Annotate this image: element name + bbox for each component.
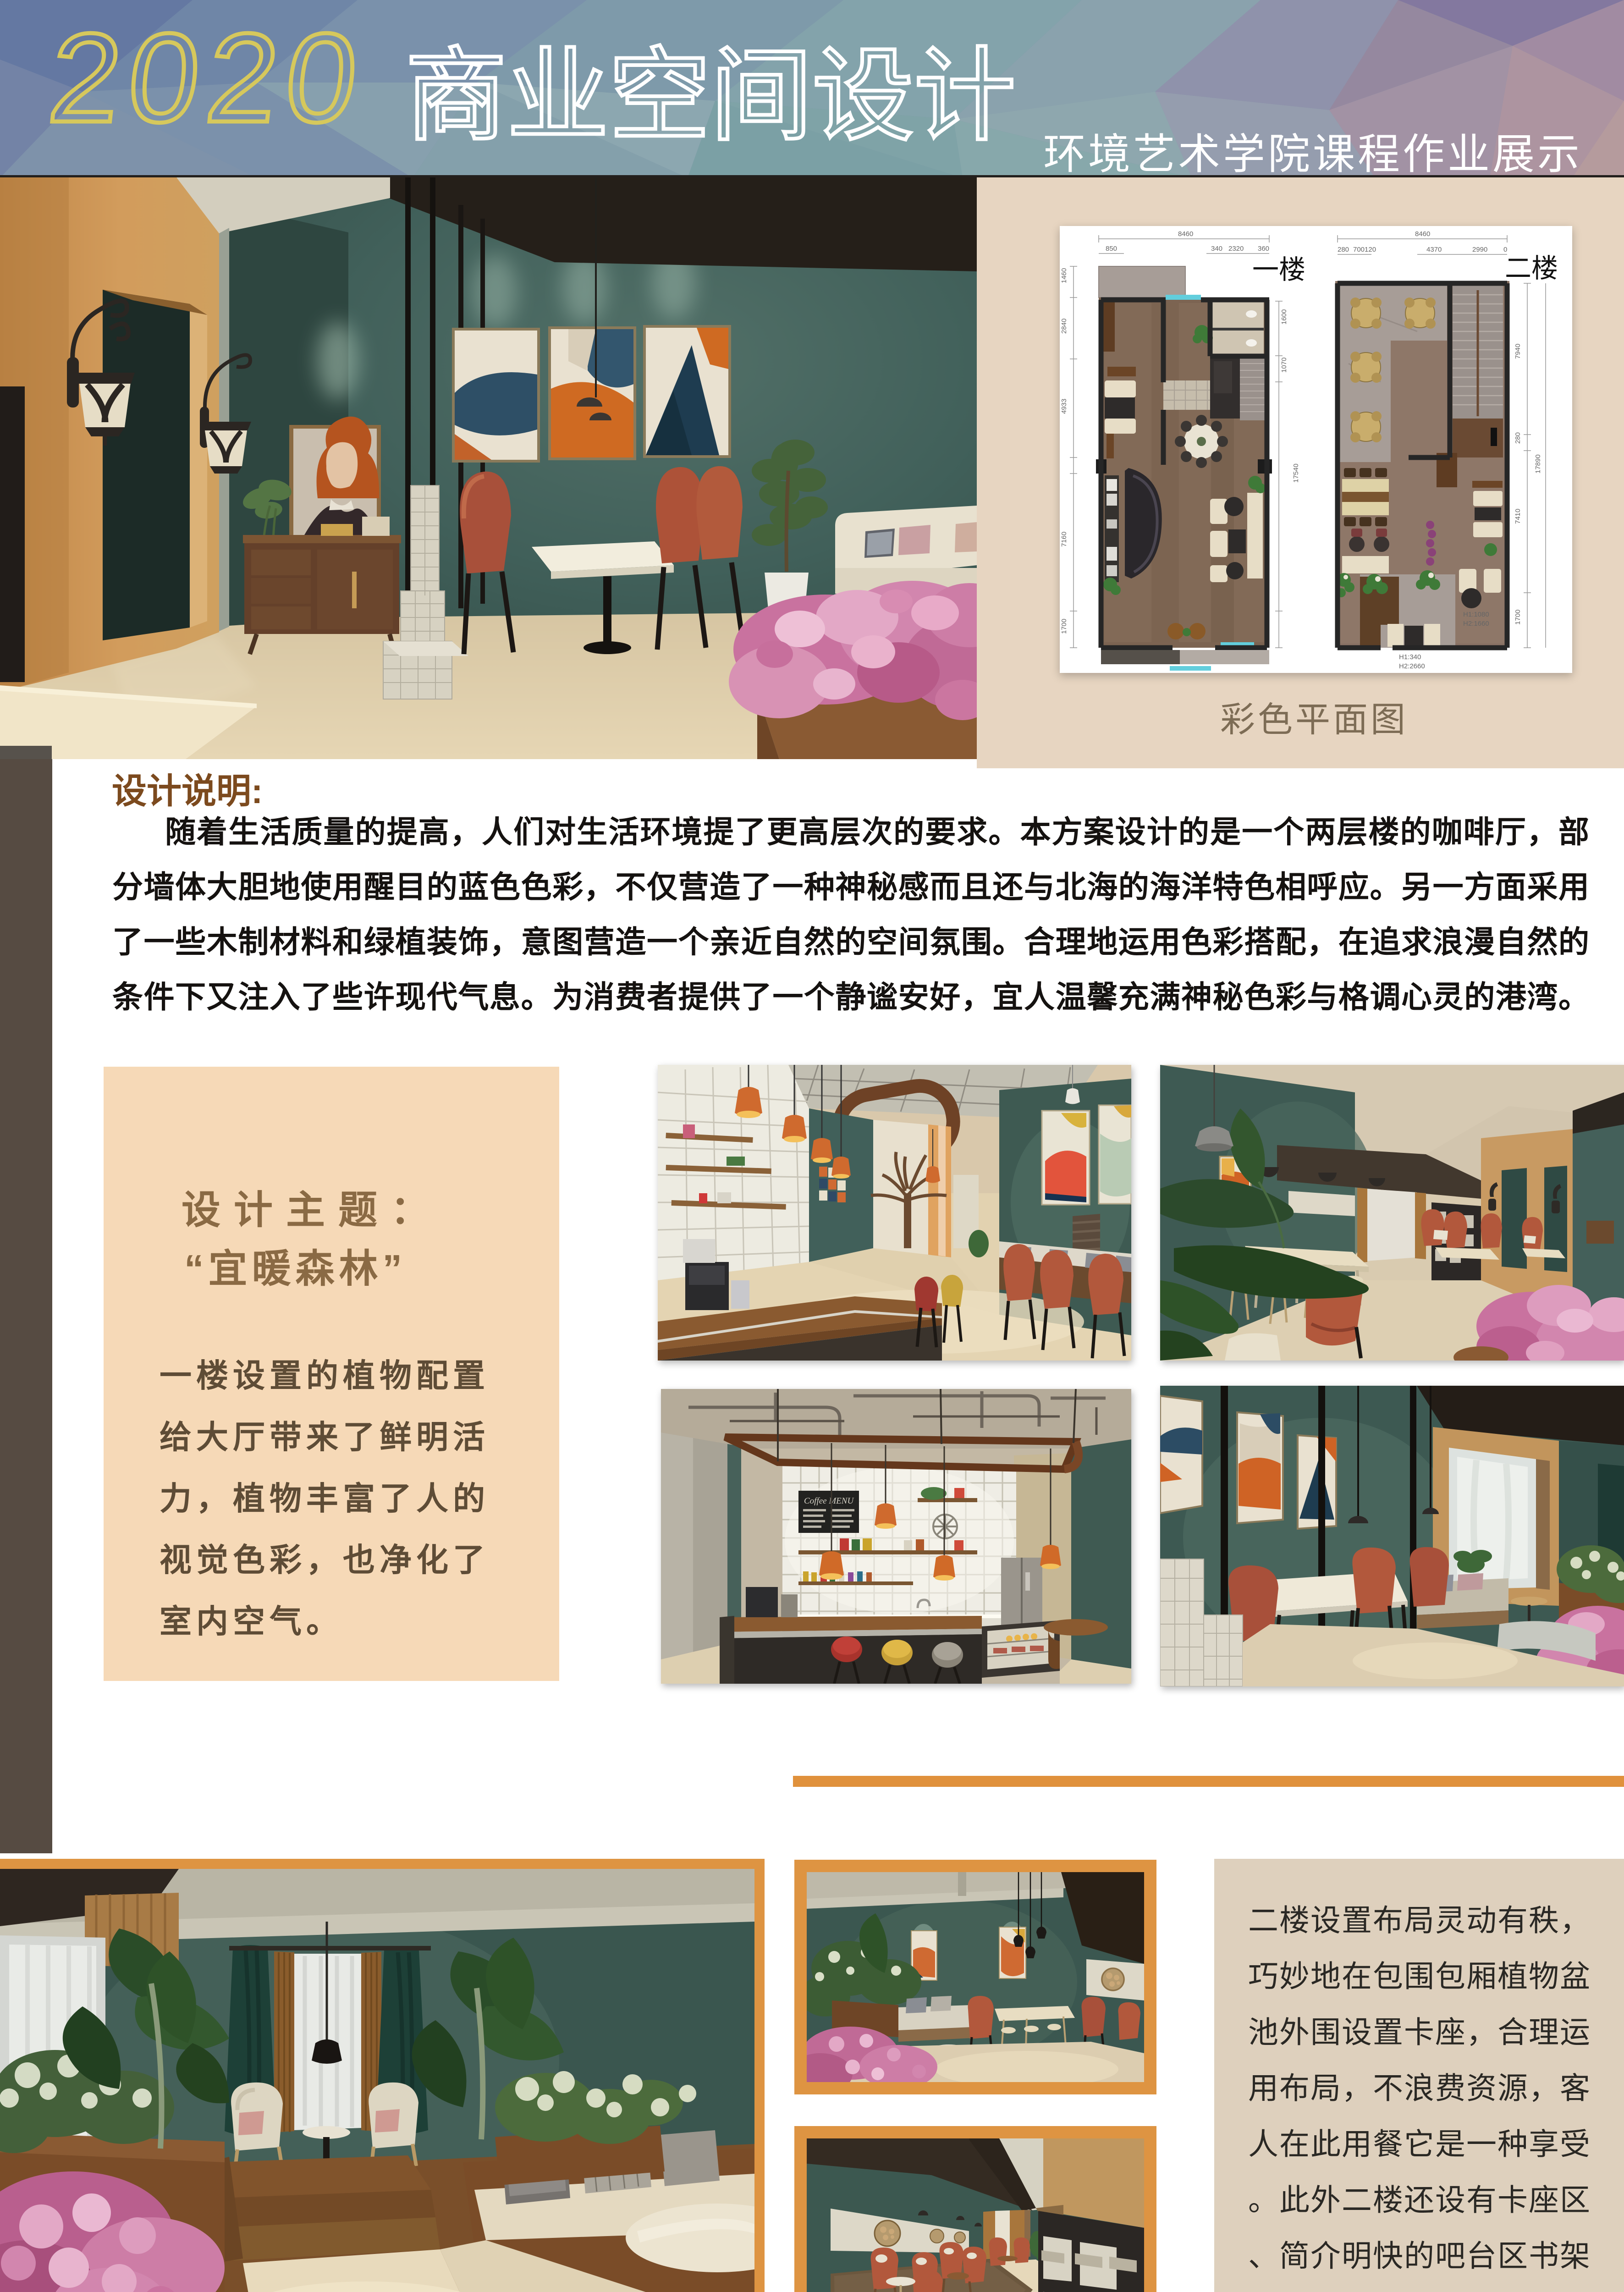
svg-text:4933: 4933 (1060, 399, 1068, 414)
svg-text:17540: 17540 (1292, 463, 1300, 483)
svg-text:1460: 1460 (1060, 268, 1068, 283)
svg-text:1700: 1700 (1514, 610, 1522, 625)
svg-text:H1:1080: H1:1080 (1463, 611, 1489, 618)
svg-text:4370: 4370 (1426, 246, 1442, 253)
svg-text:700120: 700120 (1353, 246, 1376, 253)
svg-text:360: 360 (1258, 245, 1269, 253)
svg-text:1600: 1600 (1280, 309, 1288, 325)
svg-text:850: 850 (1106, 245, 1117, 253)
svg-text:1070: 1070 (1280, 358, 1288, 373)
svg-text:一楼: 一楼 (1252, 255, 1305, 285)
svg-text:17890: 17890 (1534, 454, 1542, 474)
svg-text:二楼: 二楼 (1505, 253, 1558, 283)
svg-text:7410: 7410 (1514, 509, 1522, 524)
svg-text:8460: 8460 (1178, 230, 1193, 238)
svg-text:340: 340 (1211, 245, 1222, 253)
svg-text:7160: 7160 (1060, 532, 1068, 547)
svg-text:Coffee MENU: Coffee MENU (804, 1496, 854, 1506)
svg-text:H1:340: H1:340 (1399, 653, 1421, 661)
svg-text:280: 280 (1514, 432, 1522, 444)
svg-text:2320: 2320 (1228, 245, 1244, 253)
svg-text:8460: 8460 (1415, 230, 1430, 238)
svg-text:280: 280 (1338, 246, 1349, 253)
svg-text:7940: 7940 (1514, 344, 1522, 359)
svg-text:H2:1660: H2:1660 (1463, 620, 1489, 628)
svg-text:2840: 2840 (1060, 319, 1068, 334)
svg-text:0: 0 (1503, 246, 1507, 253)
svg-text:H2:2660: H2:2660 (1399, 662, 1425, 670)
svg-text:1700: 1700 (1060, 619, 1068, 634)
svg-text:2990: 2990 (1472, 246, 1487, 253)
